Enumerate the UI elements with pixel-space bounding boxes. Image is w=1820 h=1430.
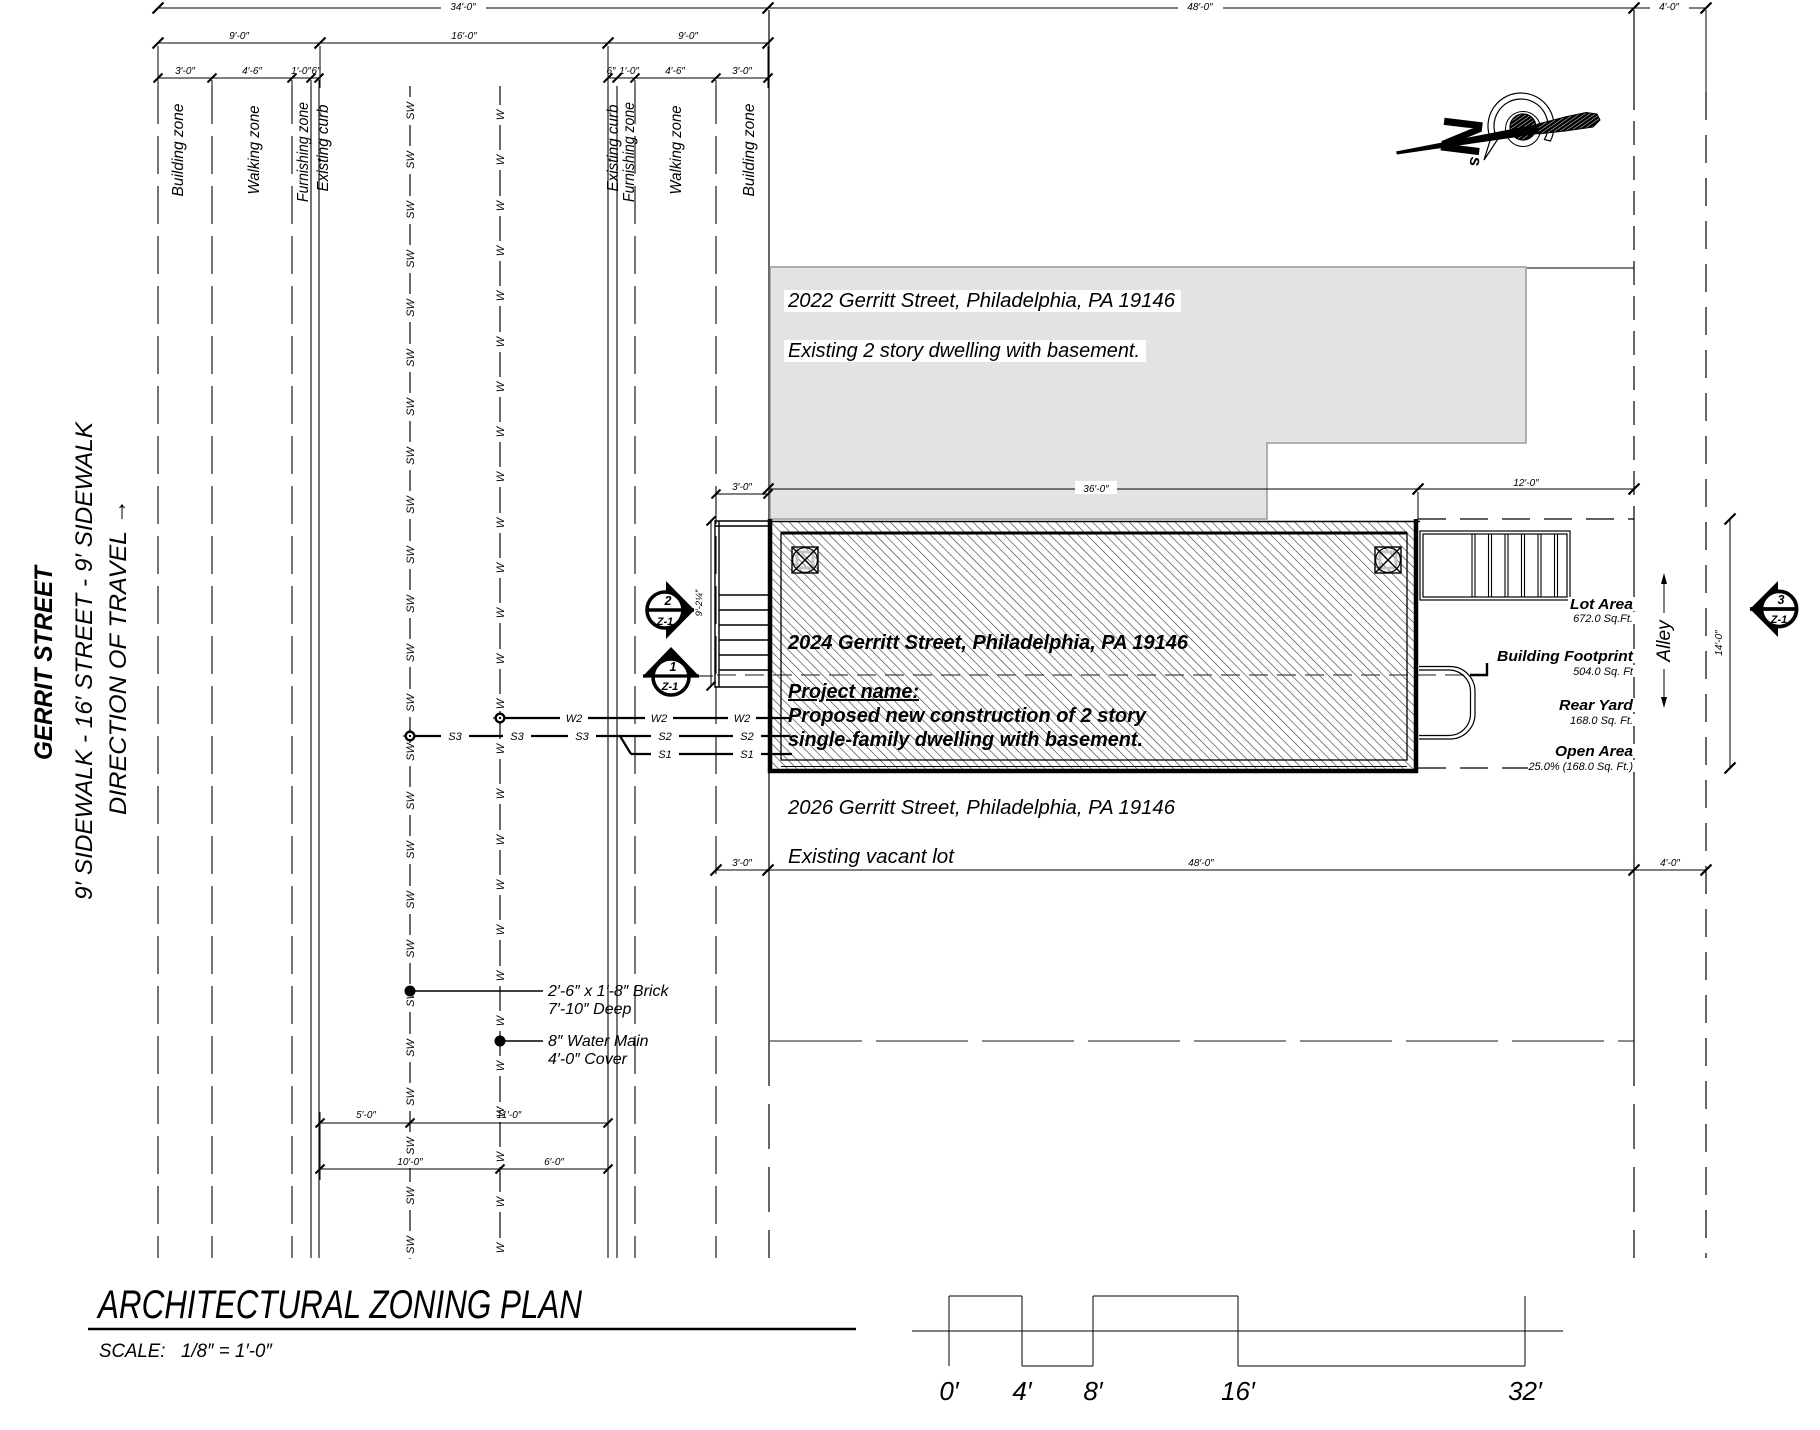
svg-text:SW: SW bbox=[405, 348, 417, 367]
svg-text:7′-10″ Deep: 7′-10″ Deep bbox=[548, 1001, 631, 1018]
svg-text:SW: SW bbox=[405, 939, 417, 958]
svg-text:4′-0″: 4′-0″ bbox=[1659, 2, 1679, 13]
svg-text:W: W bbox=[495, 1059, 507, 1071]
svg-text:Building zone: Building zone bbox=[170, 103, 187, 196]
svg-text:4′-6″: 4′-6″ bbox=[665, 66, 685, 77]
svg-text:W: W bbox=[495, 516, 507, 528]
svg-text:W: W bbox=[495, 425, 507, 437]
svg-text:W: W bbox=[495, 108, 507, 120]
svg-text:504.0 Sq. Ft: 504.0 Sq. Ft bbox=[1573, 666, 1634, 678]
svg-text:3′-0″: 3′-0″ bbox=[732, 482, 752, 493]
svg-text:SW: SW bbox=[405, 1136, 417, 1155]
svg-text:Furnishing zone: Furnishing zone bbox=[295, 102, 312, 202]
svg-text:Z-1: Z-1 bbox=[661, 681, 679, 693]
svg-text:2022 Gerritt Street, Philadelp: 2022 Gerritt Street, Philadelphia, PA 19… bbox=[787, 290, 1176, 312]
svg-text:W: W bbox=[495, 923, 507, 935]
svg-text:SW: SW bbox=[405, 200, 417, 219]
svg-text:S2: S2 bbox=[658, 731, 671, 743]
svg-text:W: W bbox=[495, 1150, 507, 1162]
svg-text:6′-0″: 6′-0″ bbox=[544, 1157, 564, 1168]
svg-text:W: W bbox=[495, 1241, 507, 1253]
svg-text:W: W bbox=[495, 1014, 507, 1026]
svg-text:W: W bbox=[495, 833, 507, 845]
svg-text:Proposed new construction of 2: Proposed new construction of 2 story bbox=[788, 705, 1147, 727]
svg-text:W: W bbox=[495, 969, 507, 981]
svg-text:3′-0″: 3′-0″ bbox=[175, 66, 195, 77]
svg-text:36′-0″: 36′-0″ bbox=[1083, 484, 1109, 495]
svg-text:3: 3 bbox=[1778, 593, 1785, 607]
svg-text:SW: SW bbox=[405, 1087, 417, 1106]
svg-text:SW: SW bbox=[405, 742, 417, 761]
svg-text:SW: SW bbox=[405, 643, 417, 662]
svg-text:25.0% (168.0 Sq. Ft.): 25.0% (168.0 Sq. Ft.) bbox=[1527, 761, 1633, 773]
svg-text:W: W bbox=[495, 606, 507, 618]
svg-text:2′-6″ x 1′-8″ Brick: 2′-6″ x 1′-8″ Brick bbox=[547, 983, 669, 1000]
svg-text:32′: 32′ bbox=[1508, 1376, 1543, 1406]
svg-text:W2: W2 bbox=[651, 713, 668, 725]
svg-text:SW: SW bbox=[405, 890, 417, 909]
svg-text:W: W bbox=[495, 153, 507, 165]
svg-text:11′-0″: 11′-0″ bbox=[497, 1110, 522, 1121]
svg-text:W: W bbox=[495, 742, 507, 754]
svg-text:GERRIT STREET: GERRIT STREET bbox=[30, 563, 58, 760]
svg-text:SW: SW bbox=[405, 1186, 417, 1205]
svg-text:SW: SW bbox=[405, 791, 417, 810]
svg-text:SW: SW bbox=[405, 1038, 417, 1057]
svg-text:48′-0″: 48′-0″ bbox=[1188, 858, 1214, 869]
svg-text:S2: S2 bbox=[740, 731, 753, 743]
svg-text:16′: 16′ bbox=[1221, 1376, 1256, 1406]
svg-text:Existing curb: Existing curb bbox=[605, 104, 622, 191]
svg-text:Alley: Alley bbox=[1654, 619, 1675, 663]
svg-text:W2: W2 bbox=[734, 713, 751, 725]
svg-text:SW: SW bbox=[405, 150, 417, 169]
svg-text:S1: S1 bbox=[658, 749, 671, 761]
svg-text:0′: 0′ bbox=[939, 1376, 959, 1406]
svg-text:9′-0″: 9′-0″ bbox=[229, 31, 249, 42]
svg-text:S1: S1 bbox=[740, 749, 753, 761]
svg-text:Open Area: Open Area bbox=[1555, 744, 1633, 760]
svg-text:ARCHITECTURAL ZONING PLAN: ARCHITECTURAL ZONING PLAN bbox=[96, 1283, 582, 1327]
svg-text:S3: S3 bbox=[575, 731, 589, 743]
svg-text:Existing 2 story dwelling with: Existing 2 story dwelling with basement. bbox=[788, 340, 1140, 362]
svg-text:W: W bbox=[495, 697, 507, 709]
svg-text:W: W bbox=[495, 380, 507, 392]
svg-text:W2: W2 bbox=[566, 713, 583, 725]
svg-text:Building zone: Building zone bbox=[741, 103, 758, 196]
svg-text:8′: 8′ bbox=[1083, 1376, 1103, 1406]
svg-text:672.0 Sq.Ft.: 672.0 Sq.Ft. bbox=[1573, 613, 1633, 625]
svg-text:1′-0″: 1′-0″ bbox=[291, 66, 311, 77]
svg-text:12′-0″: 12′-0″ bbox=[1513, 478, 1539, 489]
svg-text:SW: SW bbox=[405, 101, 417, 120]
svg-text:Z-1: Z-1 bbox=[656, 616, 674, 628]
svg-text:2024 Gerritt Street, Philadelp: 2024 Gerritt Street, Philadelphia, PA 19… bbox=[787, 632, 1189, 654]
svg-text:S3: S3 bbox=[510, 731, 524, 743]
svg-text:SW: SW bbox=[405, 693, 417, 712]
svg-text:Furnishing zone: Furnishing zone bbox=[621, 102, 638, 202]
svg-text:W: W bbox=[495, 470, 507, 482]
svg-text:9′-2¼″: 9′-2¼″ bbox=[694, 589, 705, 616]
svg-text:Rear Yard: Rear Yard bbox=[1559, 698, 1634, 714]
svg-text:SW: SW bbox=[405, 249, 417, 268]
svg-text:9′-0″: 9′-0″ bbox=[678, 31, 698, 42]
svg-text:1: 1 bbox=[670, 660, 677, 674]
svg-text:168.0 Sq. Ft.: 168.0 Sq. Ft. bbox=[1570, 715, 1633, 727]
svg-text:8″ Water Main: 8″ Water Main bbox=[548, 1033, 649, 1050]
svg-text:SW: SW bbox=[405, 495, 417, 514]
svg-text:SW: SW bbox=[405, 545, 417, 564]
svg-text:Building Footprint: Building Footprint bbox=[1497, 649, 1634, 665]
svg-text:SW: SW bbox=[405, 397, 417, 416]
svg-text:W: W bbox=[495, 199, 507, 211]
svg-text:4′-0″ Cover: 4′-0″ Cover bbox=[548, 1051, 628, 1068]
svg-text:DIRECTION OF TRAVEL →: DIRECTION OF TRAVEL → bbox=[105, 499, 132, 815]
svg-text:SW: SW bbox=[405, 1235, 417, 1254]
svg-text:W: W bbox=[495, 652, 507, 664]
svg-text:34′-0″: 34′-0″ bbox=[450, 2, 476, 13]
svg-text:N: N bbox=[1428, 113, 1495, 161]
svg-text:W: W bbox=[495, 289, 507, 301]
svg-text:4′: 4′ bbox=[1012, 1376, 1032, 1406]
svg-text:S3: S3 bbox=[448, 731, 462, 743]
svg-text:SW: SW bbox=[405, 594, 417, 613]
svg-text:SCALE: 1/8″ = 1′-0″: SCALE: 1/8″ = 1′-0″ bbox=[99, 1341, 273, 1362]
svg-text:SW: SW bbox=[405, 298, 417, 317]
svg-text:2026 Gerritt Street, Philadelp: 2026 Gerritt Street, Philadelphia, PA 19… bbox=[787, 797, 1176, 819]
svg-text:3′-0″: 3′-0″ bbox=[732, 858, 752, 869]
svg-text:2: 2 bbox=[664, 594, 672, 608]
svg-text:SW: SW bbox=[405, 840, 417, 859]
svg-text:1′-0″: 1′-0″ bbox=[619, 66, 639, 77]
svg-text:Lot Area: Lot Area bbox=[1570, 597, 1633, 613]
svg-text:Existing curb: Existing curb bbox=[315, 104, 332, 191]
svg-text:16′-0″: 16′-0″ bbox=[451, 31, 477, 42]
svg-text:10′-0″: 10′-0″ bbox=[397, 1157, 423, 1168]
svg-text:14′-0″: 14′-0″ bbox=[1714, 630, 1725, 656]
svg-text:Walking zone: Walking zone bbox=[246, 105, 263, 194]
svg-text:Z-1: Z-1 bbox=[1770, 614, 1788, 626]
svg-text:Walking zone: Walking zone bbox=[668, 105, 685, 194]
svg-text:W: W bbox=[495, 561, 507, 573]
svg-text:W: W bbox=[495, 244, 507, 256]
svg-text:W: W bbox=[495, 335, 507, 347]
svg-text:4′-6″: 4′-6″ bbox=[242, 66, 262, 77]
svg-text:single-family dwelling with ba: single-family dwelling with basement. bbox=[788, 729, 1143, 751]
svg-text:48′-0″: 48′-0″ bbox=[1187, 2, 1213, 13]
svg-text:9′ SIDEWALK - 16′ STREET - 9′: 9′ SIDEWALK - 16′ STREET - 9′ SIDEWALK bbox=[71, 421, 98, 900]
svg-text:W: W bbox=[495, 787, 507, 799]
svg-text:3′-0″: 3′-0″ bbox=[732, 66, 752, 77]
svg-text:W: W bbox=[495, 1195, 507, 1207]
svg-text:Project name:: Project name: bbox=[788, 681, 919, 703]
svg-text:W: W bbox=[495, 878, 507, 890]
svg-text:Existing vacant lot: Existing vacant lot bbox=[788, 846, 955, 868]
svg-text:5′-0″: 5′-0″ bbox=[356, 1110, 376, 1121]
svg-text:4′-0″: 4′-0″ bbox=[1660, 858, 1680, 869]
svg-text:SW: SW bbox=[405, 446, 417, 465]
